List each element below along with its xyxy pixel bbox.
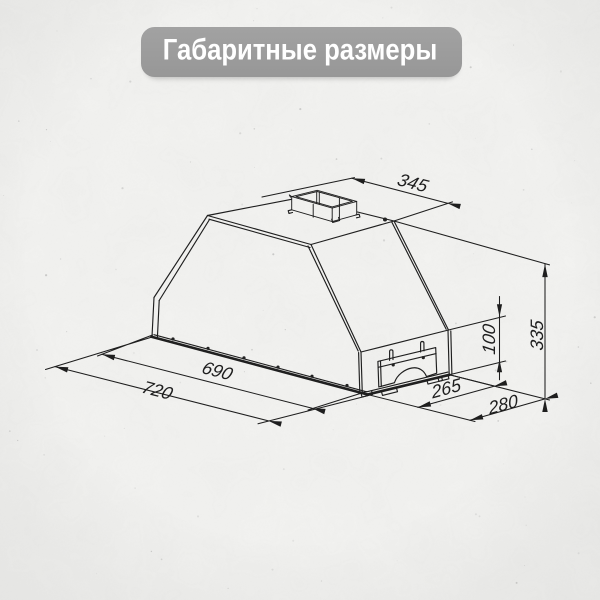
svg-text:100: 100 [479,323,499,356]
svg-text:335: 335 [527,318,547,352]
svg-text:Габаритные размеры: Габаритные размеры [163,33,437,66]
